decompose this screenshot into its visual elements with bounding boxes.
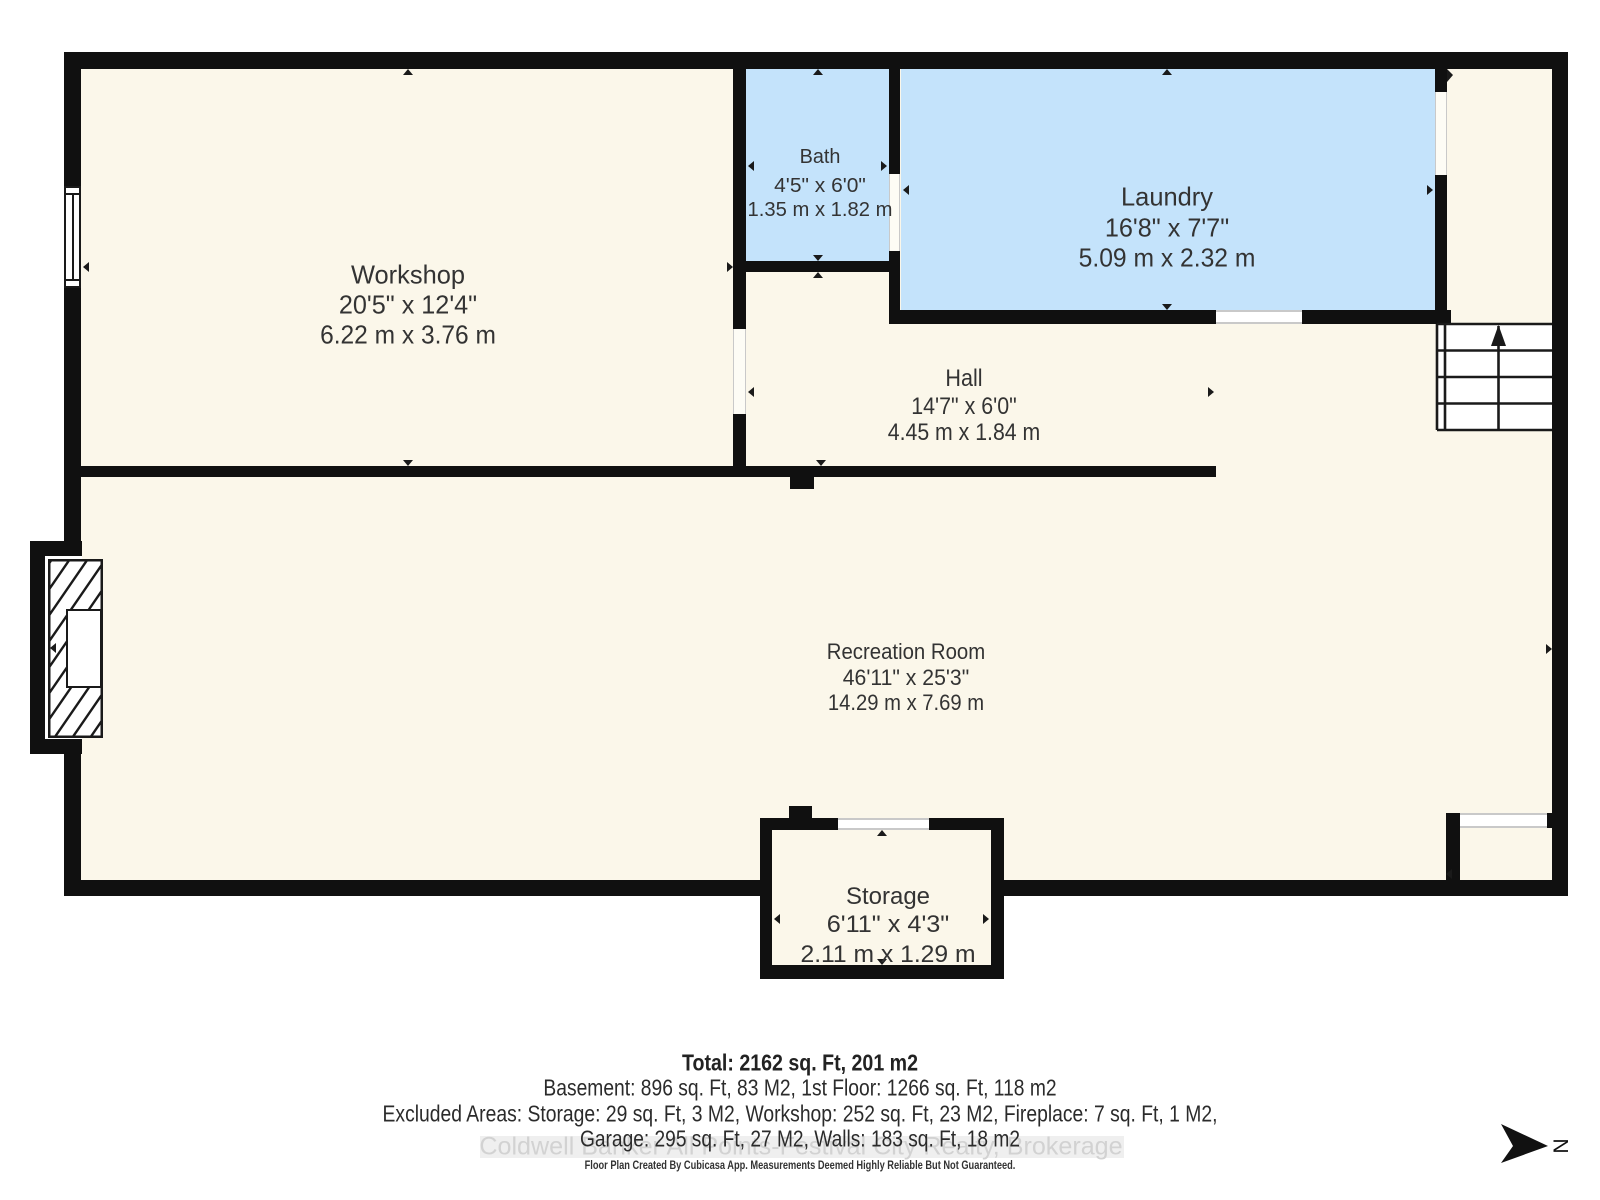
svg-text:N: N <box>1549 1138 1572 1153</box>
